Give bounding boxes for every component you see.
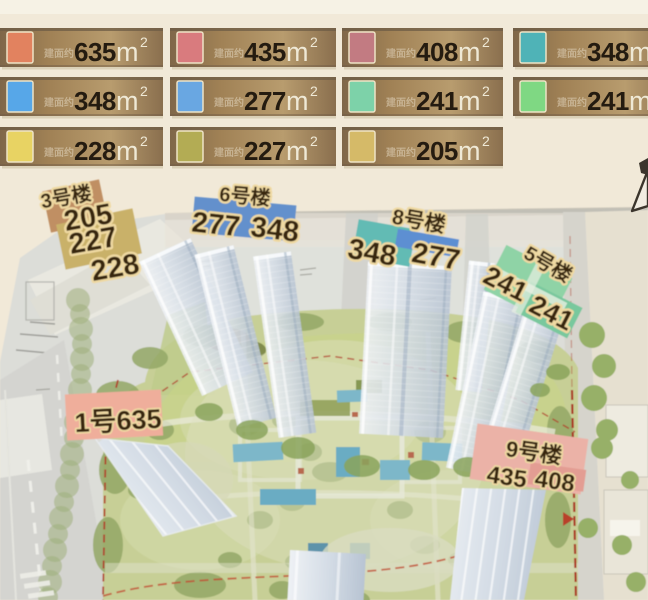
svg-text:m: m bbox=[116, 86, 139, 116]
svg-text:241: 241 bbox=[416, 86, 458, 116]
svg-text:m: m bbox=[458, 37, 481, 67]
svg-text:m: m bbox=[629, 37, 648, 67]
svg-text:建面约: 建面约 bbox=[385, 47, 416, 60]
svg-text:m: m bbox=[458, 136, 481, 166]
svg-text:m: m bbox=[286, 37, 309, 67]
svg-text:建面约: 建面约 bbox=[43, 146, 74, 159]
svg-text:2: 2 bbox=[310, 34, 318, 50]
svg-text:435: 435 bbox=[485, 461, 528, 493]
svg-text:277: 277 bbox=[244, 86, 286, 116]
svg-text:m: m bbox=[458, 86, 481, 116]
svg-text:408: 408 bbox=[533, 465, 576, 497]
svg-text:635: 635 bbox=[74, 37, 116, 67]
svg-text:2: 2 bbox=[140, 34, 148, 50]
svg-text:2: 2 bbox=[482, 34, 490, 50]
svg-text:m: m bbox=[286, 86, 309, 116]
svg-text:435: 435 bbox=[244, 37, 286, 67]
svg-text:277: 277 bbox=[190, 207, 241, 244]
svg-text:m: m bbox=[286, 136, 309, 166]
svg-text:m: m bbox=[116, 37, 139, 67]
svg-text:建面约: 建面约 bbox=[385, 146, 416, 159]
svg-text:348: 348 bbox=[249, 211, 301, 249]
svg-text:348: 348 bbox=[74, 86, 116, 116]
svg-text:建面约: 建面约 bbox=[213, 146, 244, 159]
svg-text:2: 2 bbox=[140, 83, 148, 99]
svg-text:241: 241 bbox=[587, 86, 629, 116]
svg-text:建面约: 建面约 bbox=[385, 96, 416, 109]
svg-text:348: 348 bbox=[587, 37, 629, 67]
svg-text:建面约: 建面约 bbox=[213, 96, 244, 109]
svg-text:建面约: 建面约 bbox=[556, 96, 587, 109]
svg-text:建面约: 建面约 bbox=[43, 47, 74, 60]
svg-text:2: 2 bbox=[310, 83, 318, 99]
svg-text:建面约: 建面约 bbox=[43, 96, 74, 109]
svg-text:2: 2 bbox=[482, 133, 490, 149]
svg-text:m: m bbox=[116, 136, 139, 166]
svg-text:2: 2 bbox=[310, 133, 318, 149]
svg-text:1号635: 1号635 bbox=[74, 404, 163, 439]
svg-text:227: 227 bbox=[244, 136, 286, 166]
svg-text:建面约: 建面约 bbox=[213, 47, 244, 60]
svg-text:408: 408 bbox=[416, 37, 458, 67]
svg-text:m: m bbox=[629, 86, 648, 116]
svg-text:228: 228 bbox=[74, 136, 116, 166]
svg-text:2: 2 bbox=[140, 133, 148, 149]
svg-text:6号楼: 6号楼 bbox=[218, 183, 271, 210]
svg-text:建面约: 建面约 bbox=[556, 47, 587, 60]
svg-text:205: 205 bbox=[416, 136, 458, 166]
svg-text:2: 2 bbox=[482, 83, 490, 99]
